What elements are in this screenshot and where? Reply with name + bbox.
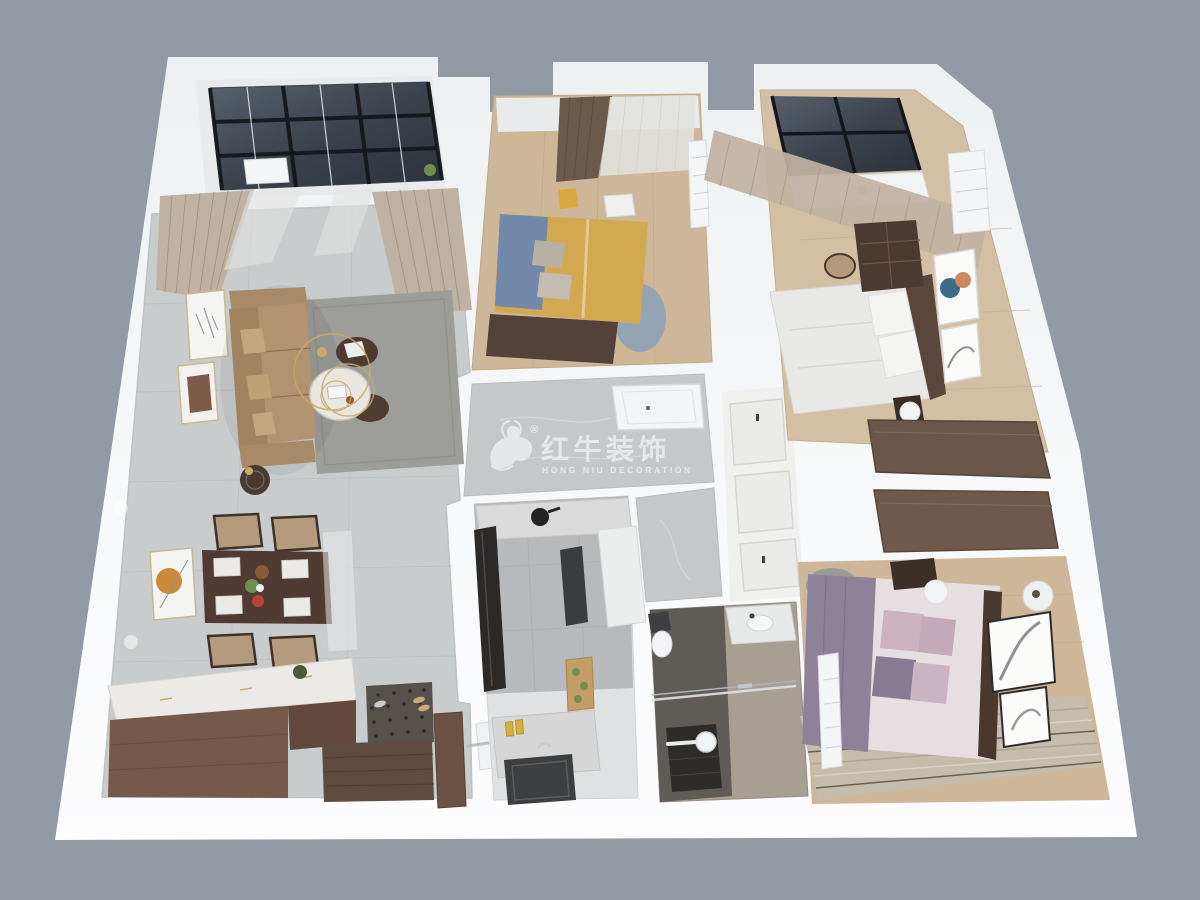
kitchen [474, 496, 646, 805]
toilet-tank [648, 611, 671, 633]
sideboard-front [108, 706, 288, 798]
bedroom-3 [798, 556, 1110, 804]
wardrobe-top-b [874, 490, 1058, 552]
ac-unit [818, 653, 842, 769]
toilet-bowl [652, 631, 672, 657]
dining-chair [272, 516, 320, 551]
bedside-lamp [900, 402, 920, 422]
brand-name-cn: 红牛装饰 [541, 433, 671, 465]
ac-unit [948, 150, 990, 234]
bed1-pillow-gray [532, 240, 565, 268]
picture-frame-black [1000, 687, 1050, 747]
desk-chair [825, 254, 855, 278]
brand-name-en: HONG NIU DECORATION [542, 465, 693, 475]
glass-console [322, 530, 358, 652]
bed2-pillow [868, 290, 914, 336]
sofa-pillow [246, 374, 272, 400]
bed3-pillow [872, 656, 916, 700]
cooktop-pan [531, 508, 549, 526]
sideboard-plant [293, 665, 307, 679]
bedroom1-nightstand [604, 194, 635, 217]
art-orange-shape [955, 272, 971, 288]
bathroom [648, 602, 808, 802]
vanity-faucet [750, 614, 755, 619]
wardrobe-top-a [868, 420, 1050, 478]
bed1-pillow-gray [537, 272, 572, 300]
shower-head [696, 732, 716, 752]
art-brown-square [187, 374, 212, 413]
balcony-left [196, 76, 446, 198]
bed1-foot-cabinet [486, 314, 618, 364]
dining-chair [208, 634, 256, 667]
stool-decor [1032, 590, 1040, 598]
wall-light [114, 501, 128, 515]
art-orange-circle [156, 568, 182, 594]
balcony-table [244, 158, 289, 184]
hatch-latch [646, 406, 650, 410]
bed3-pillow [910, 662, 950, 704]
table-lamp-gold [245, 467, 253, 475]
ac-unit [688, 140, 709, 228]
floorplan-render: ® 红牛装饰 HONG NIU DECORATION [0, 0, 1200, 900]
sofa-pillow [252, 412, 276, 436]
balcony-plant [424, 164, 436, 176]
dining-chair [214, 514, 262, 549]
bedside-lamp [924, 580, 948, 604]
picture-frame [941, 323, 981, 383]
corridor-floor-vertical [636, 488, 722, 602]
shower-arm [668, 742, 696, 744]
kitchen-door-leaf [434, 712, 466, 808]
registered-mark: ® [530, 424, 538, 436]
picture-frame [186, 290, 228, 360]
side-table [240, 465, 270, 495]
cutting-board [566, 657, 594, 711]
sofa-pillow [240, 328, 266, 354]
bedroom1-sheer-drape [600, 95, 696, 176]
bed3-pillow [880, 610, 924, 652]
wall-light [124, 635, 138, 649]
bedroom-1 [472, 94, 712, 370]
bed3-pillow [918, 616, 956, 656]
floor-pillow-yellow [558, 188, 578, 209]
chandelier-globe [317, 347, 327, 357]
picture-frame-black [988, 612, 1055, 692]
sideboard-side [288, 700, 356, 750]
coffee-table-book [327, 385, 346, 399]
side-table-top [240, 465, 270, 495]
